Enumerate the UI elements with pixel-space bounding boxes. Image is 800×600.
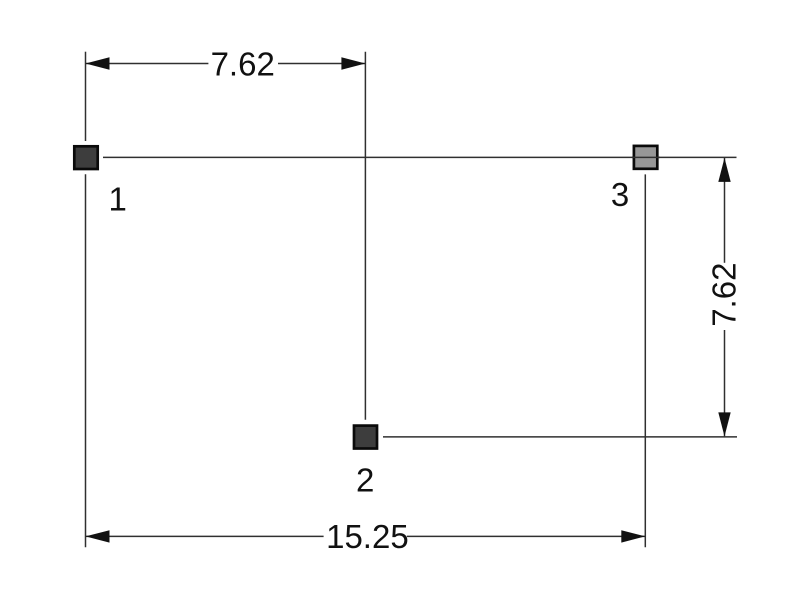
svg-text:1: 1 [109, 181, 127, 218]
svg-text:2: 2 [356, 462, 374, 499]
svg-text:7.62: 7.62 [705, 263, 742, 327]
svg-text:3: 3 [611, 176, 629, 213]
svg-text:7.62: 7.62 [211, 45, 275, 82]
svg-text:15.25: 15.25 [326, 518, 409, 555]
